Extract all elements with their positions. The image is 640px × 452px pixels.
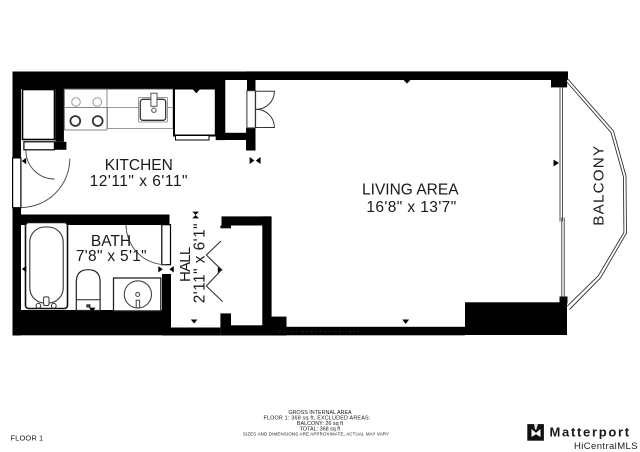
svg-text:SIZES AND DIMENSIONS ARE APPRO: SIZES AND DIMENSIONS ARE APPROXIMATE, AC…: [243, 432, 389, 437]
svg-text:LIVING AREA: LIVING AREA: [362, 182, 459, 199]
svg-text:2'11" x 6'1": 2'11" x 6'1": [192, 223, 209, 303]
svg-text:12'11" x 6'11": 12'11" x 6'11": [90, 173, 188, 190]
svg-text:BALCONY: BALCONY: [590, 145, 607, 226]
svg-text:16'8" x 13'7": 16'8" x 13'7": [366, 199, 456, 216]
svg-text:KITCHEN: KITCHEN: [105, 157, 173, 174]
svg-text:FLOOR 1: FLOOR 1: [11, 434, 44, 443]
svg-text:Matterport: Matterport: [550, 424, 631, 439]
svg-text:Darryl Oumi Photography: Darryl Oumi Photography: [278, 329, 361, 335]
svg-text:7'8" x 5'1": 7'8" x 5'1": [76, 248, 147, 265]
svg-text:HiCentralMLS: HiCentralMLS: [574, 441, 638, 452]
